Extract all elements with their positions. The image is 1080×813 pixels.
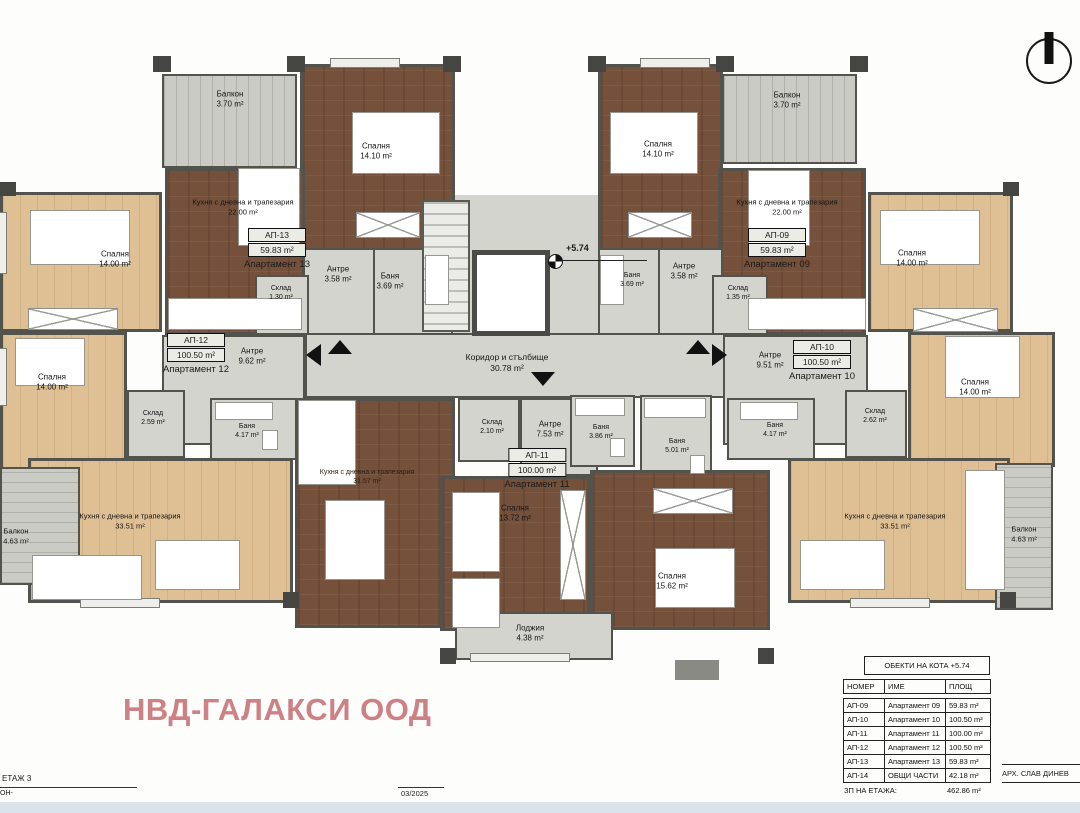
dining-table-icon [800,540,885,590]
table-row: АП-13 Апартамент 13 59.83 m² [843,754,993,769]
kitchen-counter-icon [965,470,1005,590]
apartment-label-ap12: АП-12100.50 m² Апартамент 12 [163,333,229,375]
total-label: ЗП НА ЕТАЖА: [844,786,947,795]
label-ap13-balcony: Балкон3.70 m² [216,90,243,111]
level-symbol-icon [548,254,563,269]
dining-table-icon [325,500,385,580]
schedule-total-row: ЗП НА ЕТАЖА: 462.86 m² [843,783,993,795]
pillar [443,56,461,72]
label-ap11-storage: Склад2.10 m² [480,418,504,436]
label-ap09-balcony: Балкон3.70 m² [773,91,800,112]
pillar [1003,182,1019,196]
label-ap12-balcony: Балкон4.63 m² [3,526,28,546]
table-row: АП-12 Апартамент 12 100.50 m² [843,740,993,755]
apartment-label-ap09: АП-0959.83 m² Апартамент 09 [744,228,810,270]
pillar [850,56,868,72]
level-mark: +5.74 [566,243,589,253]
label-ap13-bedroom: Спалня14.10 m² [360,142,392,163]
label-ap12-bath: Баня4.17 m² [235,422,259,440]
label-ap11-bath1: Баня3.86 m² [589,423,613,441]
dining-table-icon [155,540,240,590]
schedule-title: ОБЕКТИ НА КОТА +5.74 [864,656,990,675]
apartment-label-ap10: АП-10100.50 m² Апартамент 10 [789,340,855,382]
column-number: НОМЕР [843,679,885,694]
table-row: АП-11 Апартамент 11 100.00 m² [843,726,993,741]
pillar [153,56,171,72]
pillar [287,56,305,72]
pillar [1000,592,1016,608]
label-ap09-kitchen: Кухня с дневна и трапезария22.00 m² [736,197,837,217]
arrow-left-icon [306,344,321,366]
label-ap11-loggia: Лоджия4.38 m² [516,624,544,645]
apartment-label-ap13: АП-1359.83 m² Апартамент 13 [244,228,310,270]
wardrobe-icon [28,308,118,330]
divider [398,787,444,788]
total-value: 462.86 m² [947,786,981,795]
label-ap12-storage: Склад2.59 m² [141,409,165,427]
label-ap13-storage: Склад1.30 m² [269,284,293,302]
schedule-header-row: НОМЕР ИМЕ ПЛОЩ [843,679,993,694]
label-ap09-hall: Антре3.58 m² [670,262,697,283]
room-ap09-balcony [722,74,857,164]
company-watermark: НВД-ГАЛАКСИ ООД [123,692,432,728]
label-ap11-hall: Антре7.53 m² [536,420,563,441]
toilet-icon [262,430,278,450]
label-ap13-bath: Баня3.69 m² [376,272,403,293]
label-ap11-kitchen: Кухня с дневна и трапезария31.57 m² [320,468,414,486]
wardrobe-icon [628,212,692,238]
window-icon [330,58,400,68]
label-ap10-bedroom2: Спалня14.00 m² [959,378,991,399]
pillar [758,648,774,664]
window-icon [0,212,7,274]
label-ap09-bedroom: Спалня14.10 m² [642,140,674,161]
arrow-down-icon [531,372,555,386]
shaft-block [675,660,719,680]
label-ap12-bedroom1: Спалня14.00 m² [99,250,131,271]
table-row: АП-10 Апартамент 10 100.50 m² [843,712,993,727]
label-ap10-bedroom1: Спалня14.00 m² [896,249,928,270]
label-ap10-kitchen: Кухня с дневна и трапезария33.51 m² [844,511,945,531]
arrow-right-icon [712,344,727,366]
bathtub-icon [740,402,798,420]
label-ap12-hall: Антре9.62 m² [238,347,265,368]
label-ap11-bedroom1: Спалня13.72 m² [499,504,531,525]
label-ap12-bedroom2: Спалня14.00 m² [36,373,68,394]
label-ap10-storage: Склад2.62 m² [863,407,887,425]
bed-icon [452,578,500,628]
divider [0,787,137,788]
window-icon [470,653,570,662]
label-ap13-kitchen: Кухня с дневна и трапезария22.00 m² [192,197,293,217]
label-ap09-storage: Склад1.35 m² [726,284,750,302]
window-icon [0,348,7,406]
north-arrow-icon [1026,38,1072,84]
pillar [0,182,16,196]
table-row: АП-14 ОБЩИ ЧАСТИ 42.18 m² [843,768,993,783]
window-icon [640,58,710,68]
bathtub-icon [215,402,273,420]
room-ap13-balcony [162,74,297,168]
bed-icon [452,492,500,572]
divider [1002,782,1080,783]
apartment-label-ap11: АП-11100.00 m² Апартамент 11 [504,448,569,490]
schedule-table: ОБЕКТИ НА КОТА +5.74 НОМЕР ИМЕ ПЛОЩ АП-0… [843,656,993,795]
wardrobe-icon [356,212,420,238]
date-label: 03/2025 [401,789,428,798]
wardrobe-icon [913,308,998,332]
kitchen-counter-icon [748,298,866,330]
column-name: ИМЕ [884,679,946,694]
pillar [588,56,606,72]
label-ap11-bath2: Баня5.01 m² [665,437,689,455]
floor-plan: Балкон3.70 m² Спалня14.10 m² Кухня с дне… [0,0,1080,813]
table-row: АП-09 Апартамент 09 59.83 m² [843,698,993,713]
sink-counter-icon [575,398,625,416]
window-icon [850,598,930,608]
toilet-icon [690,455,705,474]
bathtub-icon [644,398,706,418]
drawing-code: ОН- [0,790,13,797]
arrow-up-icon [328,340,352,354]
label-ap10-bath: Баня4.17 m² [763,421,787,439]
arrow-up-icon [686,340,710,354]
schedule-body: АП-09 Апартамент 09 59.83 m² АП-10 Апарт… [843,698,993,783]
level-line [561,260,647,261]
column-area: ПЛОЩ [945,679,991,694]
label-ap12-kitchen: Кухня с дневна и трапезария33.51 m² [79,511,180,531]
architect-block: АРХ. СЛАВ ДИНЕВ [1002,764,1080,783]
kitchen-counter-icon [168,298,302,330]
elevator-shaft [472,250,550,336]
wardrobe-icon [560,490,586,600]
architect-name: АРХ. СЛАВ ДИНЕВ [1002,765,1080,782]
label-ap09-bath: Баня3.69 m² [620,271,644,289]
bed-icon [880,210,980,265]
pillar [716,56,734,72]
pillar [283,592,299,608]
label-ap10-hall: Антре9.51 m² [756,351,783,372]
wardrobe-icon [653,488,733,514]
kitchen-counter-icon [32,555,142,600]
pillar [440,648,456,664]
floor-label: ЕТАЖ 3 [2,774,31,783]
label-ap11-bedroom2: Спалня15.62 m² [656,572,688,593]
room-ap13-hall [303,248,375,335]
label-ap13-hall: Антре3.58 m² [324,265,351,286]
bathtub-icon [425,255,449,305]
label-ap10-balcony: Балкон4.63 m² [1011,524,1036,544]
label-corridor: Коридор и стълбище30.78 m² [466,352,549,374]
bottom-strip [0,802,1080,813]
